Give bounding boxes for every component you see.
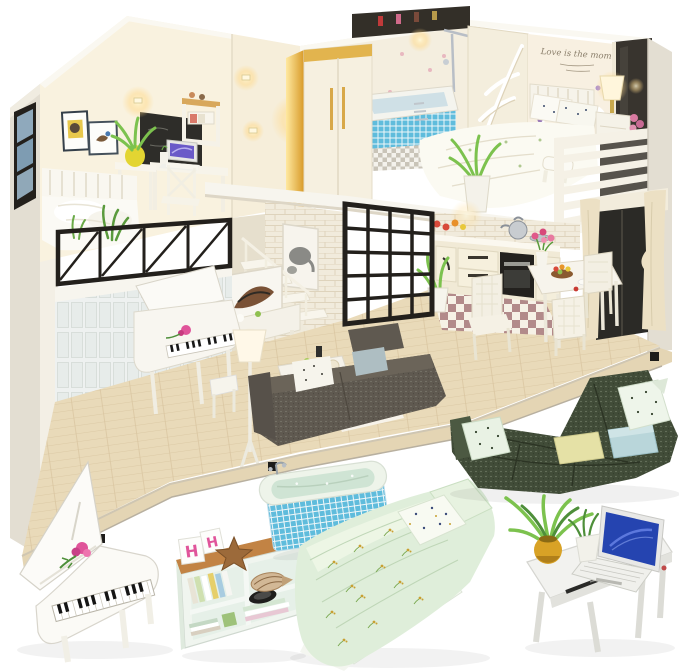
product-photo: Love is the moment	[0, 0, 679, 671]
picture-frame-cartoon	[62, 111, 89, 150]
desk-item	[506, 496, 675, 657]
oven	[500, 252, 534, 298]
letter-block: H	[178, 536, 204, 564]
exterior-window	[14, 102, 36, 210]
picture-frame-bird	[88, 121, 117, 154]
gold-wardrobe	[271, 44, 372, 214]
sofa-pillow-yellow	[554, 432, 604, 464]
bathroom-light	[408, 28, 432, 52]
bedside-lamp	[600, 76, 624, 100]
curtain-right	[641, 190, 666, 331]
svg-text:H: H	[184, 541, 200, 562]
dollhouse-scene: Love is the moment	[0, 0, 679, 671]
